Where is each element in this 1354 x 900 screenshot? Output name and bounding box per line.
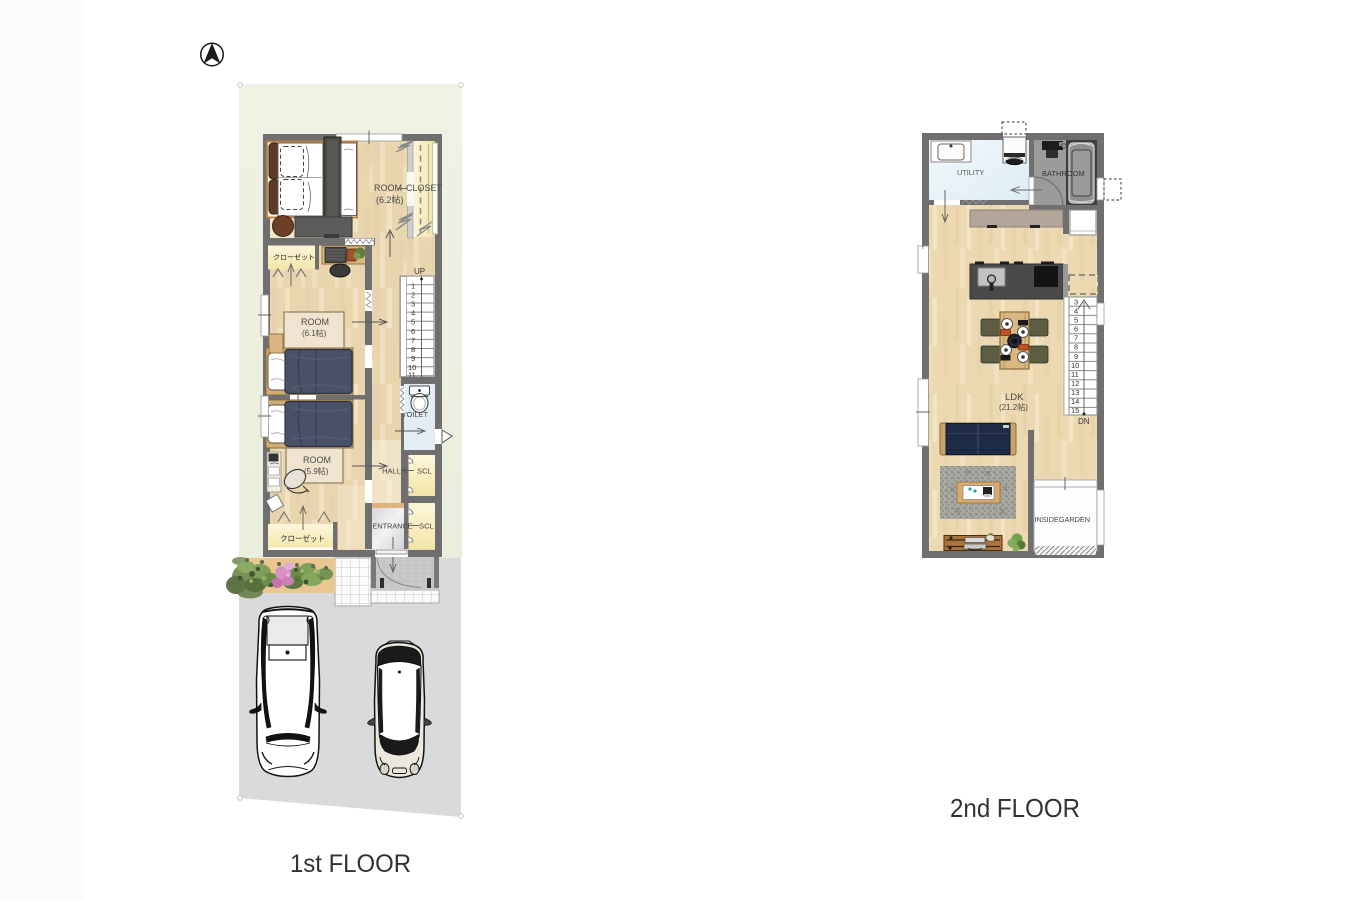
svg-text:4: 4 <box>411 309 415 318</box>
svg-text:6: 6 <box>411 327 415 336</box>
svg-text:13: 13 <box>1071 388 1079 397</box>
svg-text:6: 6 <box>1074 325 1078 334</box>
svg-text:LDK: LDK <box>1005 392 1024 403</box>
svg-text:UTILITY: UTILITY <box>957 168 984 177</box>
svg-text:12: 12 <box>1071 379 1079 388</box>
svg-text:7: 7 <box>1074 334 1078 343</box>
svg-text:(6.2帖): (6.2帖) <box>376 194 404 205</box>
svg-text:(5.9帖): (5.9帖) <box>304 466 329 476</box>
svg-text:ROOM: ROOM <box>374 183 402 193</box>
svg-text:クローゼット: クローゼット <box>273 253 315 262</box>
svg-text:14: 14 <box>1071 397 1079 406</box>
svg-text:SCL: SCL <box>419 522 434 531</box>
svg-text:(21.2帖): (21.2帖) <box>999 402 1028 412</box>
svg-text:3: 3 <box>411 300 415 309</box>
svg-text:2nd FLOOR: 2nd FLOOR <box>950 793 1080 823</box>
svg-text:INSIDEGARDEN: INSIDEGARDEN <box>1035 515 1091 524</box>
svg-text:クローゼット: クローゼット <box>280 533 325 543</box>
svg-text:2: 2 <box>411 290 415 299</box>
svg-text:ROOM: ROOM <box>303 455 331 465</box>
svg-text:1st FLOOR: 1st FLOOR <box>290 850 411 878</box>
svg-text:10: 10 <box>1071 361 1079 370</box>
svg-text:4: 4 <box>1074 307 1078 316</box>
svg-text:ENTRANCE: ENTRANCE <box>373 522 413 531</box>
svg-text:9: 9 <box>1074 352 1078 361</box>
svg-text:8: 8 <box>411 345 415 354</box>
svg-text:TOILET: TOILET <box>402 410 429 419</box>
svg-text:8: 8 <box>1074 343 1078 352</box>
svg-text:5: 5 <box>411 318 415 327</box>
svg-text:CLOSET: CLOSET <box>406 183 443 193</box>
svg-text:(6.1帖): (6.1帖) <box>302 328 327 338</box>
svg-text:3: 3 <box>1074 297 1078 306</box>
svg-text:DN: DN <box>1078 417 1090 426</box>
svg-text:1: 1 <box>411 281 415 290</box>
svg-text:HALL: HALL <box>382 467 401 476</box>
svg-text:UP: UP <box>414 267 425 276</box>
svg-text:7: 7 <box>411 336 415 345</box>
svg-text:ROOM: ROOM <box>301 317 329 327</box>
svg-text:9: 9 <box>411 354 415 363</box>
svg-text:SCL: SCL <box>417 467 432 476</box>
svg-text:BATHROOM: BATHROOM <box>1042 169 1085 178</box>
svg-text:5: 5 <box>1074 316 1078 325</box>
svg-text:15: 15 <box>1071 406 1079 415</box>
svg-text:11: 11 <box>1071 370 1079 379</box>
